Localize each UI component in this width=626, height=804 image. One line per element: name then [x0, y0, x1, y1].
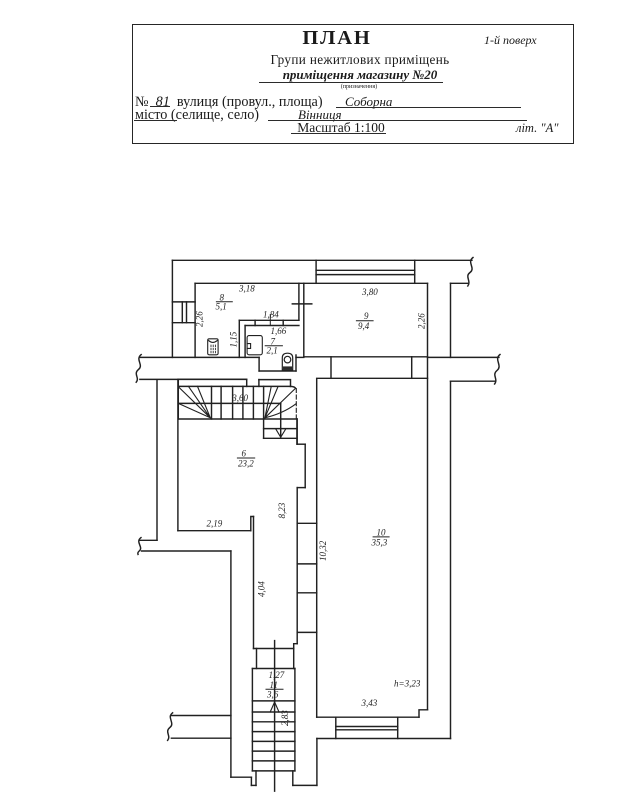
- svg-text:1,66: 1,66: [271, 326, 287, 336]
- svg-text:3,60: 3,60: [231, 393, 248, 403]
- svg-text:23,2: 23,2: [238, 459, 254, 469]
- svg-text:6: 6: [242, 448, 247, 458]
- svg-text:9,4: 9,4: [358, 321, 370, 331]
- svg-text:9: 9: [364, 311, 369, 321]
- svg-text:11: 11: [270, 680, 278, 690]
- svg-text:10,32: 10,32: [318, 540, 328, 561]
- svg-text:2,19: 2,19: [207, 519, 223, 529]
- svg-text:4,04: 4,04: [257, 581, 267, 597]
- svg-text:1,84: 1,84: [263, 310, 279, 320]
- svg-text:8,23: 8,23: [277, 502, 287, 518]
- svg-text:3,6: 3,6: [266, 690, 279, 700]
- svg-text:3,43: 3,43: [361, 698, 378, 708]
- svg-text:10: 10: [377, 528, 387, 538]
- svg-text:2,26: 2,26: [195, 311, 205, 327]
- svg-text:1,15: 1,15: [229, 331, 239, 347]
- svg-text:5,1: 5,1: [216, 302, 227, 312]
- svg-text:1,27: 1,27: [269, 670, 285, 680]
- svg-text:2,26: 2,26: [417, 313, 427, 329]
- svg-text:2,1: 2,1: [267, 346, 278, 356]
- svg-text:3,18: 3,18: [238, 284, 255, 294]
- svg-text:h=3,23: h=3,23: [394, 679, 421, 689]
- svg-text:35,3: 35,3: [371, 537, 388, 547]
- svg-text:3,80: 3,80: [361, 287, 378, 297]
